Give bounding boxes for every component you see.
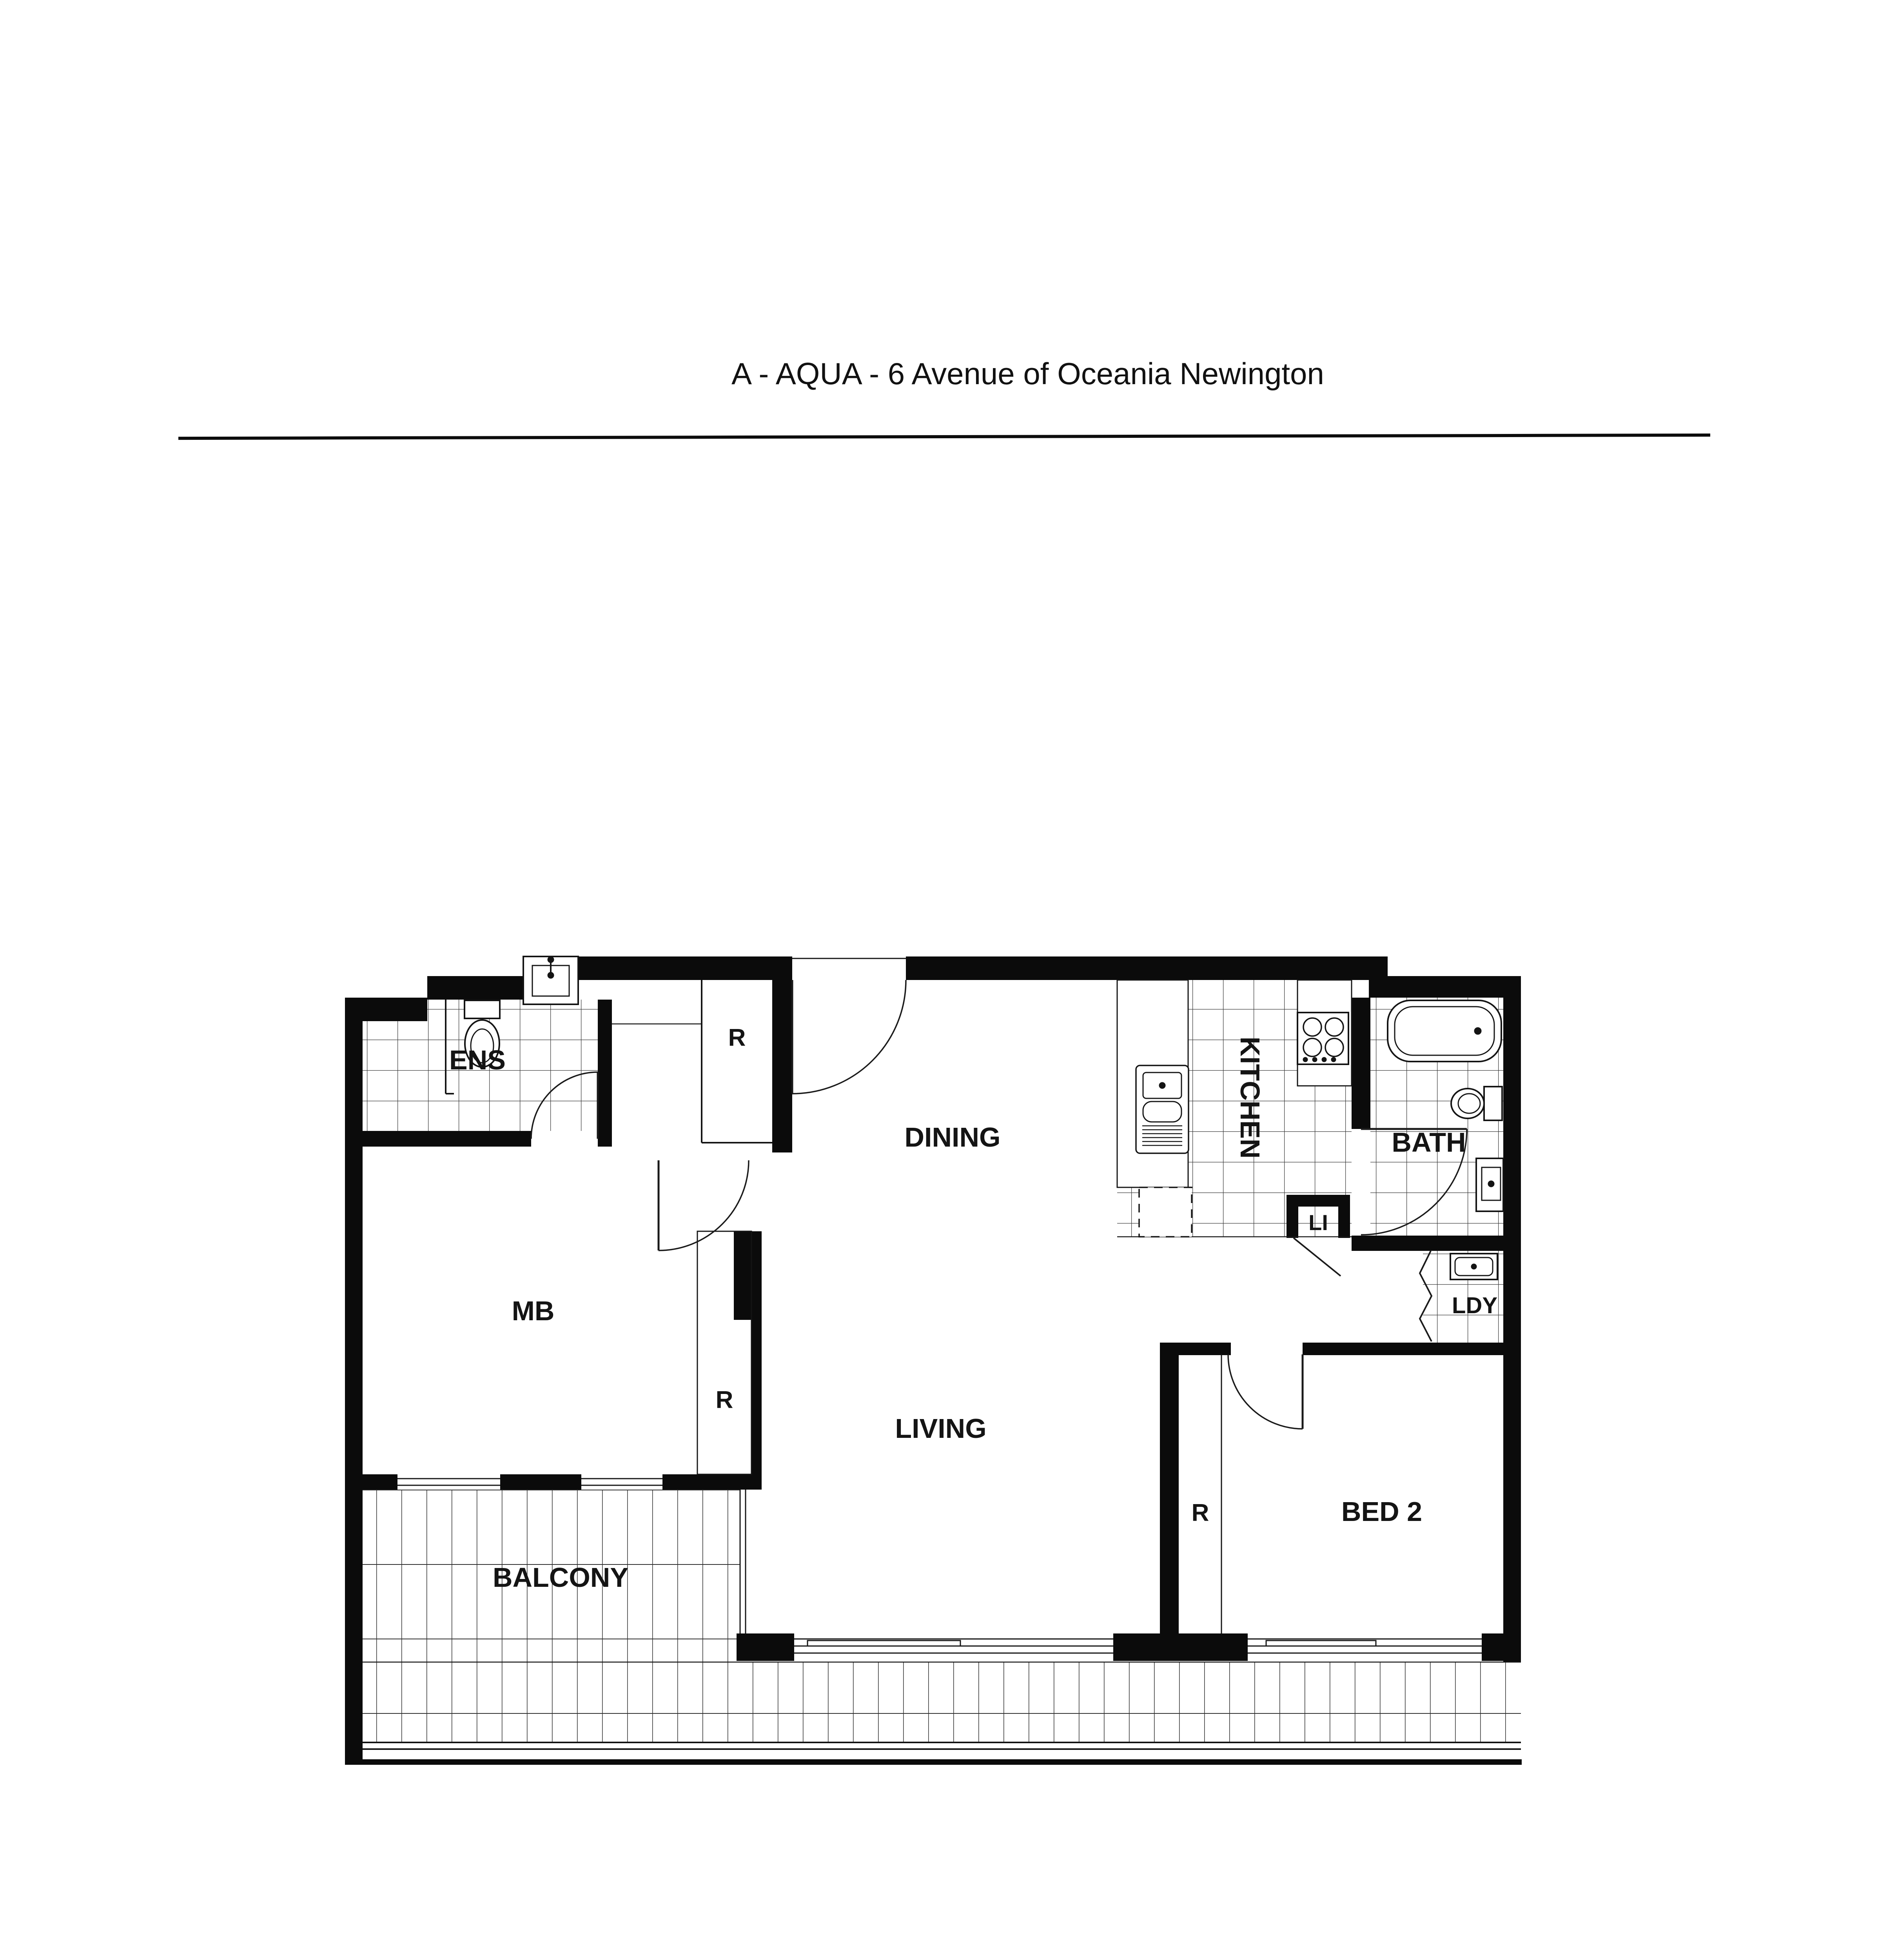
header-rule [178, 434, 1710, 440]
room-label-linen: LI [1308, 1210, 1328, 1235]
room-label-bath: BATH [1392, 1127, 1466, 1158]
room-label-dining: DINING [905, 1122, 1001, 1152]
room-label-laundry: LDY [1452, 1293, 1497, 1318]
room-label-living: LIVING [895, 1413, 986, 1444]
room-label-ens: ENS [449, 1045, 506, 1075]
room-label-robe-entry: R [728, 1024, 746, 1051]
floorplan-drawing: ENS R DINING KITCHEN BATH LI LDY MB R LI… [345, 935, 1525, 1770]
scanned-floorplan-page: { "header": { "title": "A - AQUA - 6 Ave… [0, 0, 1889, 1960]
room-label-robe-mb: R [716, 1387, 733, 1414]
room-label-robe-bed2: R [1192, 1499, 1209, 1526]
room-label-balcony: BALCONY [493, 1562, 628, 1593]
room-label-kitchen: KITCHEN [1235, 1036, 1265, 1158]
tiled-floors [363, 980, 1521, 1742]
page-title: A - AQUA - 6 Avenue of Oceania Newington [731, 356, 1324, 392]
room-label-bed2: BED 2 [1341, 1496, 1422, 1527]
room-label-mb: MB [512, 1296, 555, 1326]
